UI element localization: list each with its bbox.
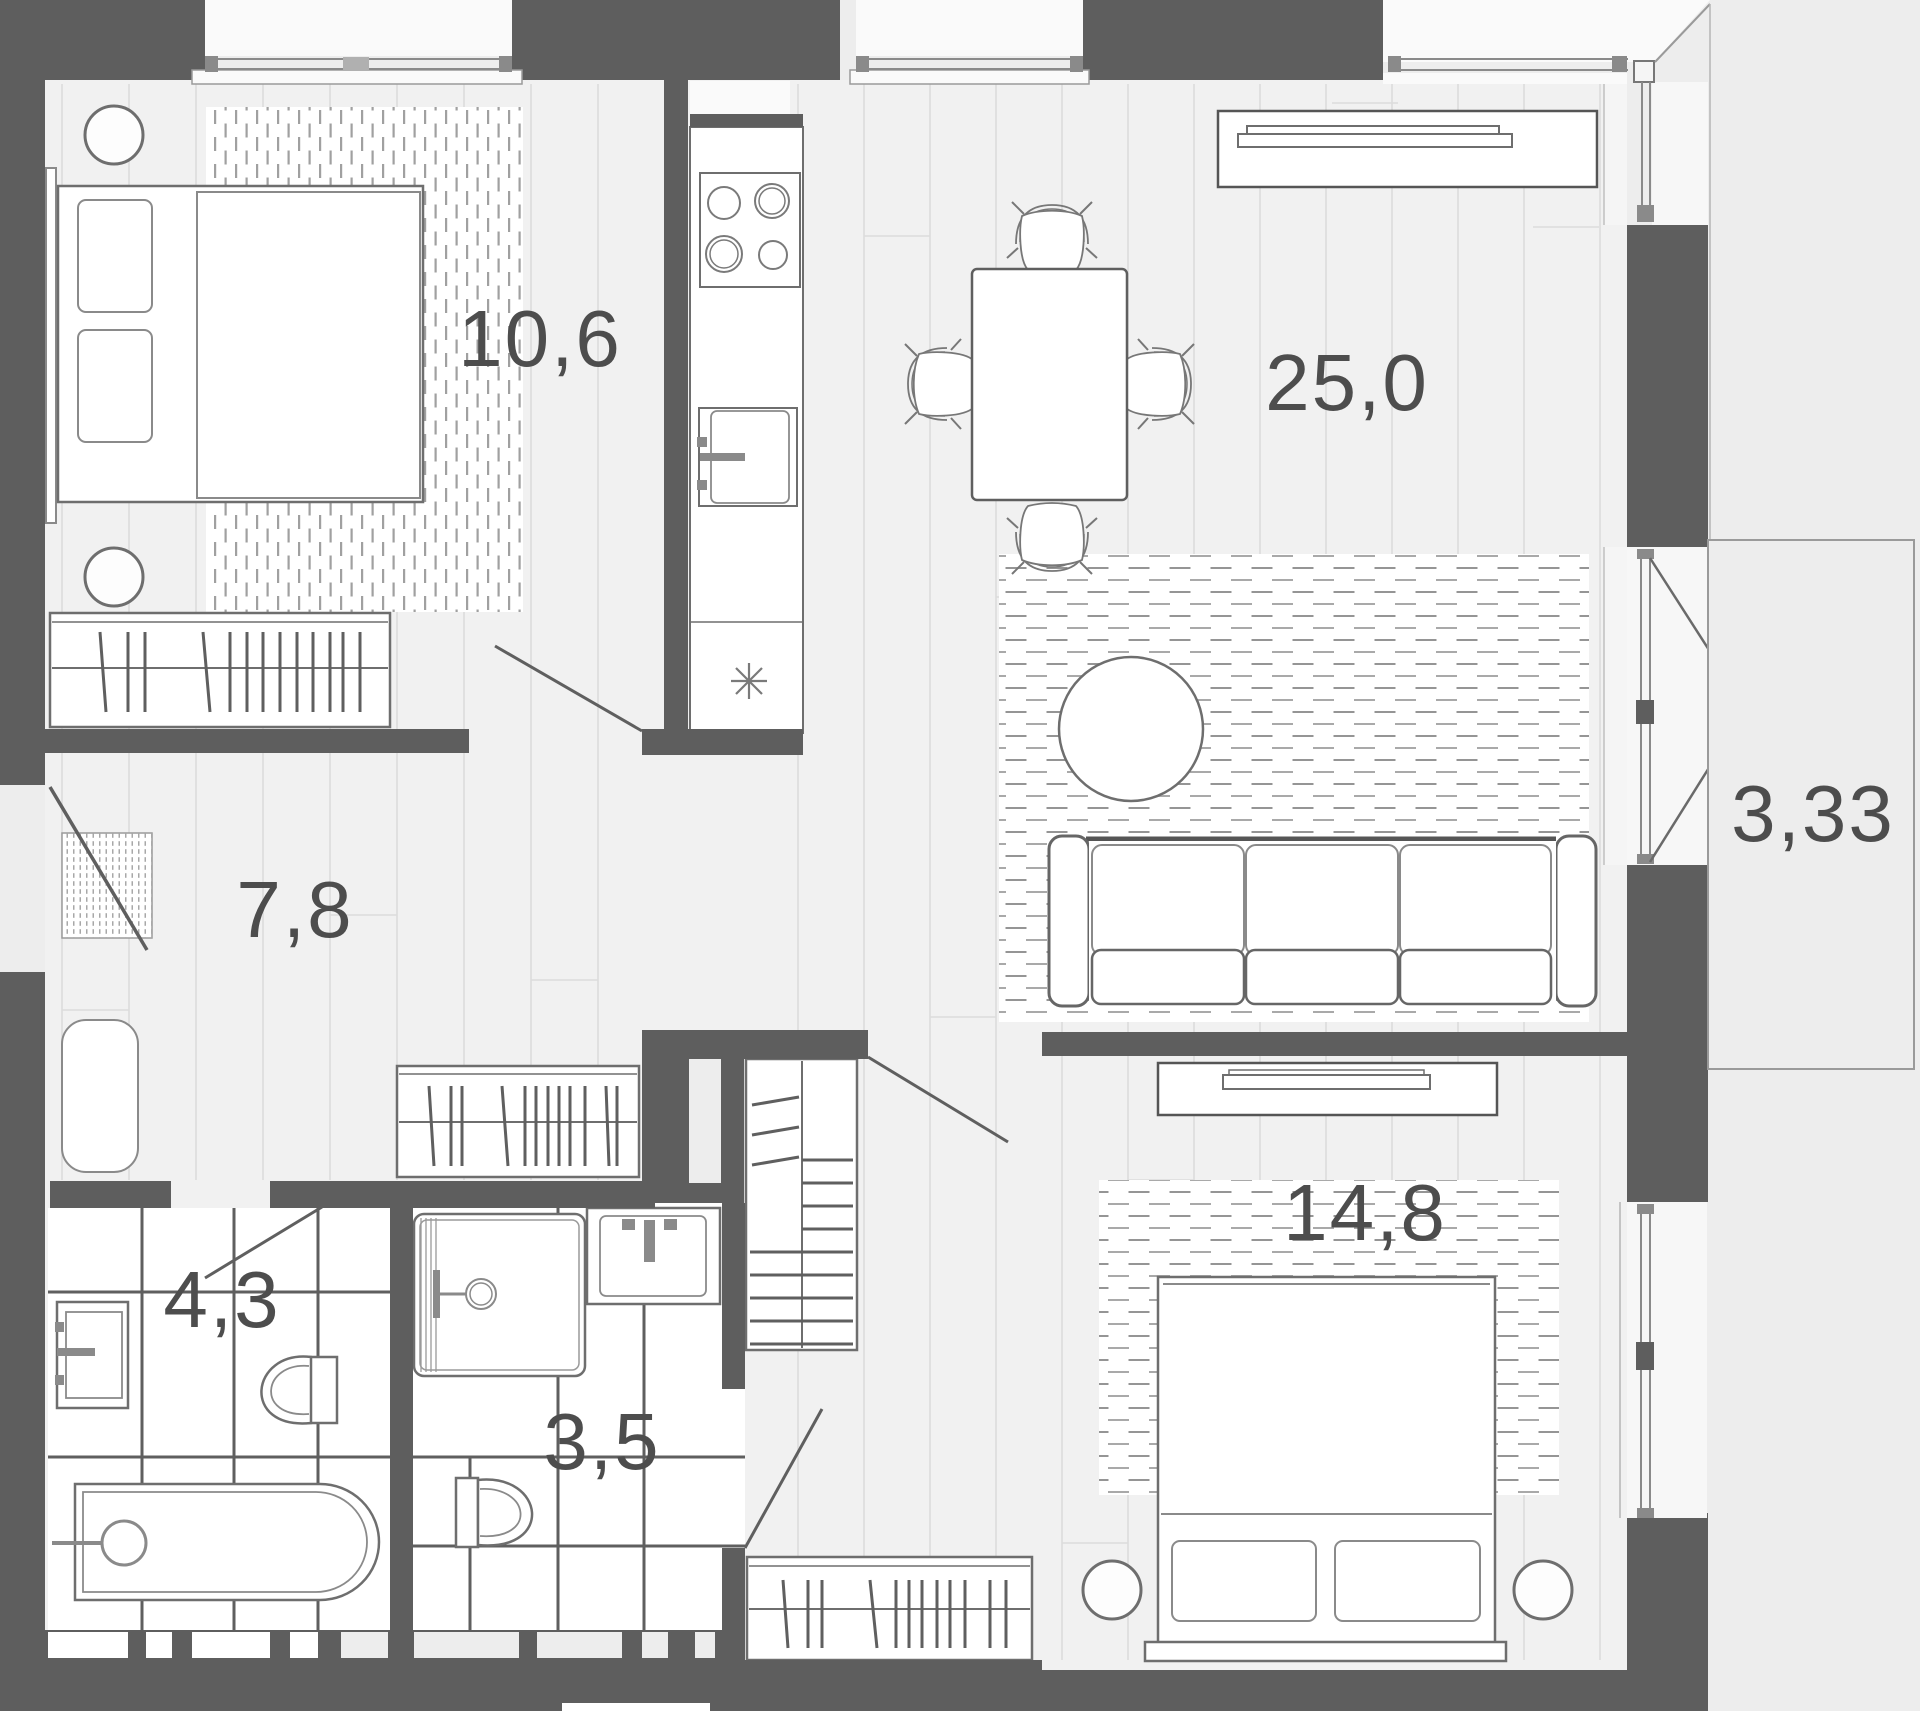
svg-text:14,8: 14,8 <box>1283 1168 1447 1257</box>
svg-text:7,8: 7,8 <box>236 865 353 954</box>
svg-text:3,5: 3,5 <box>543 1397 660 1486</box>
svg-text:10,6: 10,6 <box>458 294 622 383</box>
svg-text:25,0: 25,0 <box>1265 338 1429 427</box>
svg-text:3,33: 3,33 <box>1731 769 1895 858</box>
svg-text:4,3: 4,3 <box>163 1255 280 1344</box>
